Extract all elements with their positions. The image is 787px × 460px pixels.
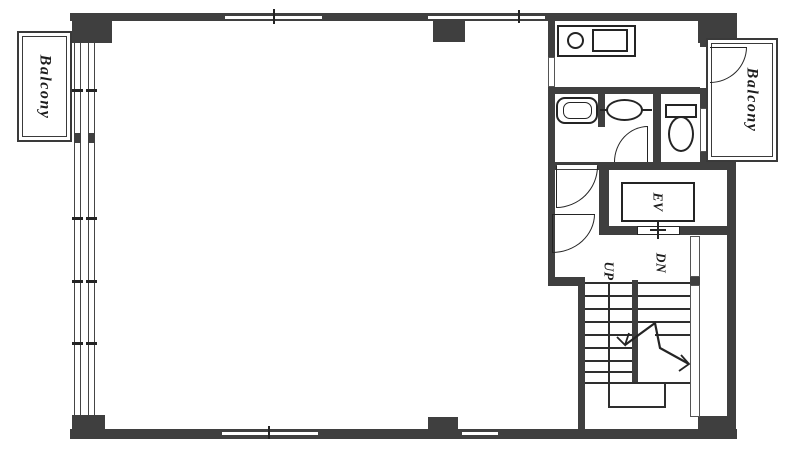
balcony-left-label: Balcony <box>36 54 54 119</box>
column <box>698 416 731 439</box>
stairs-up-label: UP <box>600 262 616 281</box>
kitchen-pass-window <box>548 57 555 87</box>
window-band-left-inner <box>88 42 95 416</box>
stairs-down-label: DN <box>652 253 668 274</box>
wall-right-outer <box>727 160 736 438</box>
stair-break-line <box>615 315 695 375</box>
stair-well-right <box>664 383 666 408</box>
balcony-left: Balcony <box>17 31 72 142</box>
kitchen-bottom-wall <box>548 87 700 94</box>
ev-shaft-bottom-wall <box>599 226 637 235</box>
window-band-left-outer <box>74 42 81 416</box>
kitchen-sink <box>592 29 628 52</box>
washroom-stall-door <box>614 126 648 162</box>
column <box>428 417 458 438</box>
window-tick <box>273 9 275 24</box>
window-tick <box>268 426 270 439</box>
window-tick <box>86 89 97 92</box>
vestibule-door-upper <box>556 166 598 208</box>
stair-window-joint <box>690 277 700 285</box>
wash-basin-oval <box>606 99 643 121</box>
toilet-bowl <box>668 116 694 152</box>
window-tick <box>72 280 83 283</box>
window-bottom-1 <box>222 432 318 435</box>
kitchen-left-wall <box>548 87 555 162</box>
kitchen-left-wall <box>548 21 555 57</box>
stair-window <box>690 236 700 277</box>
wall-bottom <box>70 429 737 439</box>
stairs-up-label-box: UP <box>594 246 622 296</box>
toilet-divider <box>653 94 661 168</box>
ev-shaft-left-wall <box>599 167 609 228</box>
floor-plan: Balcony Balcony EV <box>0 0 787 460</box>
kitchen-burner-icon <box>567 32 584 49</box>
ev-door-cross-h <box>650 229 666 231</box>
window-tick <box>86 342 97 345</box>
stair-well-bottom <box>608 406 666 408</box>
column <box>72 21 112 43</box>
stairs-down-label-box: DN <box>646 238 674 288</box>
elevator-label: EV <box>650 192 666 211</box>
window-bottom-2 <box>462 432 498 435</box>
window-tick <box>518 10 520 23</box>
window-tick <box>72 342 83 345</box>
window-joint <box>88 133 95 143</box>
window-tick <box>72 89 83 92</box>
column <box>433 21 465 42</box>
window-tick <box>86 280 97 283</box>
window-tick <box>86 217 97 220</box>
laundry-basin-inner <box>563 102 592 119</box>
corridor-right-wall <box>680 226 736 235</box>
window-top-2 <box>428 16 545 19</box>
wall-top <box>70 13 737 21</box>
stair-left-wall <box>578 280 585 438</box>
window-joint <box>74 133 81 143</box>
vestibule-door-lower <box>552 214 595 253</box>
column <box>72 415 105 438</box>
stair-bottom-line <box>585 382 690 384</box>
elevator-car: EV <box>621 182 695 222</box>
stair-well-left <box>608 383 610 408</box>
window-tick <box>72 217 83 220</box>
stair-handrail <box>608 282 610 383</box>
balcony-right-label: Balcony <box>742 68 760 133</box>
stair-tread <box>638 308 690 310</box>
stair-tread <box>638 295 690 297</box>
